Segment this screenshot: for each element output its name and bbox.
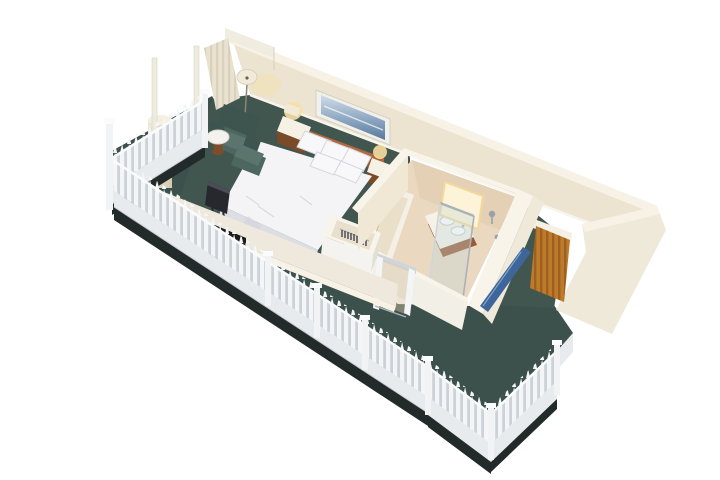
shower-head (489, 211, 495, 217)
lamp-glow (373, 145, 387, 159)
floorplan-stage (0, 0, 720, 480)
floorplan-render (0, 0, 720, 480)
